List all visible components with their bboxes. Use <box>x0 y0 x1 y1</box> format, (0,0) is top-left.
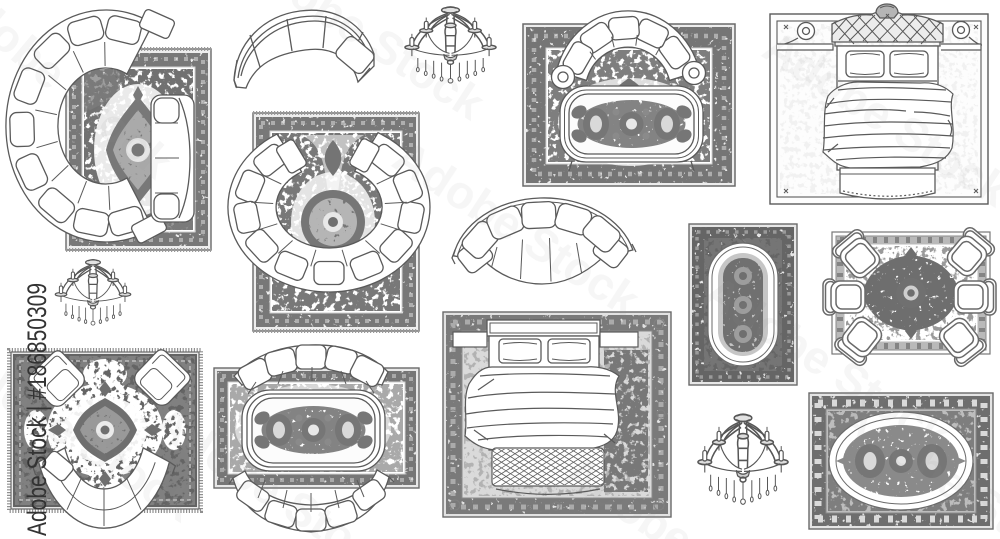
svg-text:Adobe Stock | #186850309: Adobe Stock | #186850309 <box>22 283 52 536</box>
